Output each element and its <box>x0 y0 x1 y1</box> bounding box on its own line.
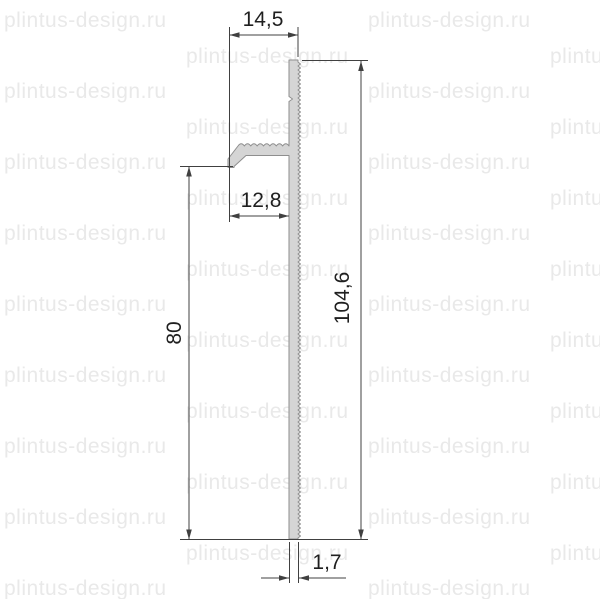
dimension-arrowhead <box>186 167 192 177</box>
dimension-label-top-width: 14,5 <box>243 8 284 32</box>
dimension-label-left-height: 80 <box>163 321 187 344</box>
dimension-label-thickness: 1,7 <box>312 551 341 575</box>
dimension-arrowhead <box>288 32 298 38</box>
dimension-arrowhead <box>279 213 289 219</box>
dimension-arrowhead <box>279 575 289 581</box>
dimension-label-arm-width: 12,8 <box>241 189 282 213</box>
dimension-arrowhead <box>299 575 309 581</box>
dimension-arrowhead <box>358 530 364 540</box>
profile-shape <box>228 60 301 539</box>
dimension-arrowhead <box>186 530 192 540</box>
dimension-label-right-height: 104,6 <box>331 272 355 325</box>
profile-drawing-svg <box>0 0 600 599</box>
dimension-arrowhead <box>230 213 240 219</box>
technical-drawing-stage: plintus-design.ruplintus-design.ruplintu… <box>0 0 600 599</box>
dimension-arrowhead <box>230 32 240 38</box>
dimension-arrowhead <box>358 61 364 71</box>
